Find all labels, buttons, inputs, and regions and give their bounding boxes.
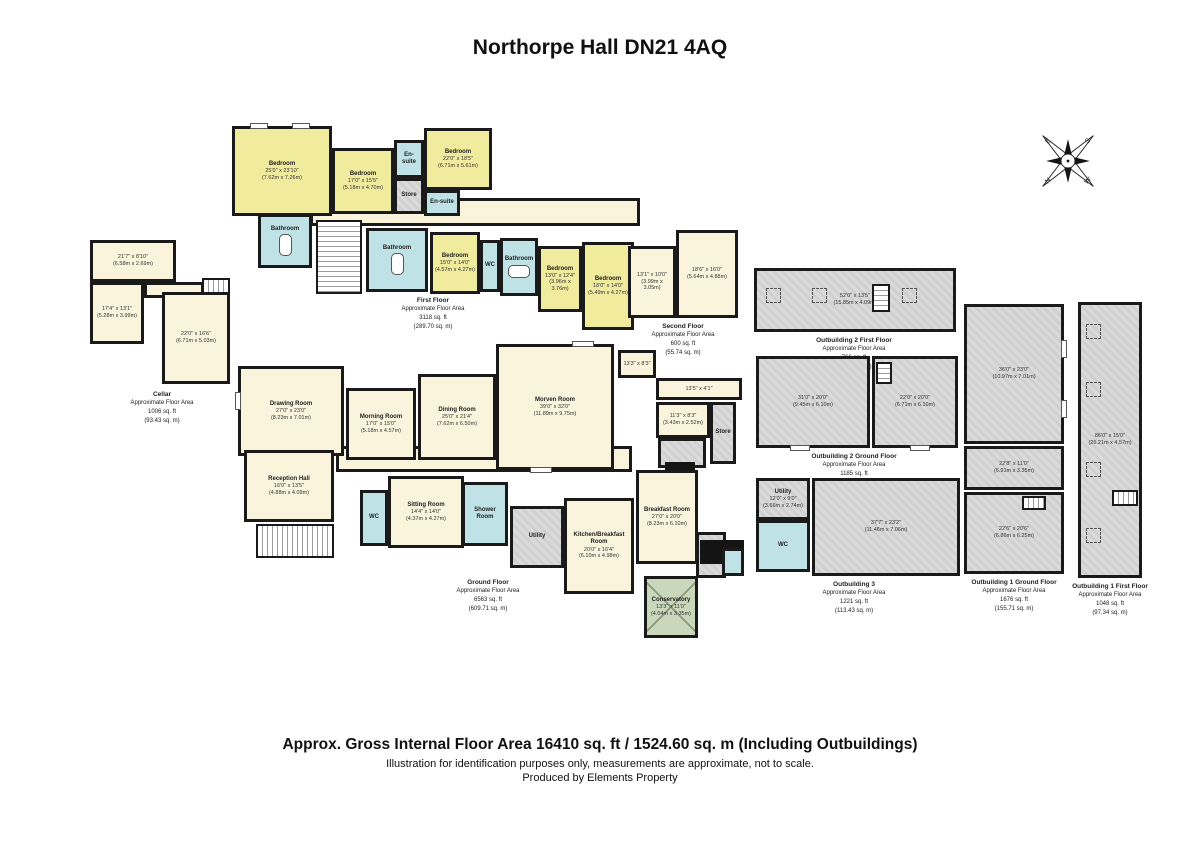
window-icon xyxy=(235,392,241,410)
floor-area-ft: 1048 sq. ft xyxy=(1066,600,1154,609)
room-dims-metric: (11.46m x 7.06m) xyxy=(865,527,908,534)
room-dims-metric: (6.86m x 6.25m) xyxy=(994,533,1034,540)
room-dims-metric: (6.91m x 3.35m) xyxy=(994,468,1034,475)
room-name: Kitchen/Breakfast Room xyxy=(568,532,630,546)
room-bedroom-2: Bedroom 17'0" x 15'5" (5.18m x 4.70m) xyxy=(332,148,394,214)
room-dims-imperial: 37'7" x 23'2" xyxy=(871,520,901,527)
floor-area-m: (97.34 sq. m) xyxy=(1066,609,1154,618)
room-dims-metric: (6.10m x 4.98m) xyxy=(579,553,619,560)
floor-label-first-floor: First Floor Approximate Floor Area 3118 … xyxy=(390,296,476,331)
room-dims-imperial: 13'0" x 12'4" xyxy=(545,273,575,280)
room-dims-metric: (4.37m x 4.27m) xyxy=(406,516,446,523)
room-morning-room: Morning Room 17'0" x 15'0" (5.18m x 4.57… xyxy=(346,388,416,460)
rooflight-icon xyxy=(766,288,781,303)
room-ensuite-2: En-suite xyxy=(424,190,460,216)
room-name: Morven Room xyxy=(535,397,575,404)
room-name: Store xyxy=(715,429,730,436)
room-dims-metric: (8.23m x 6.10m) xyxy=(647,521,687,528)
room-name: Drawing Room xyxy=(270,401,312,408)
room-dims-imperial: 18'6" x 16'0" xyxy=(692,267,722,274)
window-icon xyxy=(1061,340,1067,358)
room-name: Bedroom xyxy=(547,266,573,273)
room-bedroom-5: Bedroom 13'0" x 12'4" (3.96m x 3.76m) xyxy=(538,246,582,312)
room-dims-imperial: 13'5" x 4'1" xyxy=(685,386,712,393)
room-cellar-1: 21'7" x 8'10" (6.58m x 2.69m) xyxy=(90,240,176,282)
floor-approx: Approximate Floor Area xyxy=(446,587,530,596)
room-dims-imperial: 11'3" x 8'3" xyxy=(670,413,697,420)
room-morven-room: Morven Room 39'0" x 32'0" (11.89m x 9.75… xyxy=(496,344,614,470)
room-dims-imperial: 22'0" x 18'5" xyxy=(443,156,473,163)
window-icon xyxy=(530,467,552,473)
room-dims-imperial: 12'0" x 9'0" xyxy=(769,496,796,503)
room-corridor-2: 13'5" x 4'1" xyxy=(656,378,742,400)
room-name: Reception Hall xyxy=(268,476,310,483)
gross-floor-area-text: Approx. Gross Internal Floor Area 16410 … xyxy=(0,736,1200,754)
room-breakfast-room: Breakfast Room 27'0" x 20'0" (8.23m x 6.… xyxy=(636,470,698,564)
staircase-outbuilding1-first xyxy=(1112,490,1138,506)
room-dims-metric: (3.99m x 3.05m) xyxy=(632,279,672,292)
room-dims-metric: (10.97m x 7.01m) xyxy=(992,374,1035,381)
room-name: Store xyxy=(401,192,416,199)
floor-label-outbuilding1-ground: Outbuilding 1 Ground Floor Approximate F… xyxy=(962,578,1066,613)
floor-label-ground-floor: Ground Floor Approximate Floor Area 6563… xyxy=(446,578,530,613)
staircase-cellar xyxy=(202,278,230,294)
room-wc-firstfloor: WC xyxy=(480,240,500,292)
room-dining-room: Dining Room 25'0" x 21'4" (7.62m x 6.50m… xyxy=(418,374,496,460)
room-bedroom-1: Bedroom 25'0" x 23'10" (7.62m x 7.26m) xyxy=(232,126,332,216)
room-dims-metric: (6.71m x 5.03m) xyxy=(176,338,216,345)
room-dims-metric: (11.89m x 9.75m) xyxy=(534,411,577,418)
room-store-firstfloor: Store xyxy=(394,178,424,214)
floor-name: Ground Floor xyxy=(446,578,530,587)
room-name: Bedroom xyxy=(269,161,295,168)
room-dims-imperial: 21'7" x 8'10" xyxy=(118,254,148,261)
floor-area-ft: 1006 sq. ft xyxy=(118,408,206,417)
room-conservatory: Conservatory 13'3" x 11'0" (4.04m x 3.35… xyxy=(644,576,698,638)
room-name: Bathroom xyxy=(505,256,533,263)
room-bathroom-2: Bathroom xyxy=(366,228,428,292)
produced-by-text: Produced by Elements Property xyxy=(0,772,1200,784)
room-dims-imperial: 36'0" x 23'0" xyxy=(999,367,1029,374)
room-bathroom-1: Bathroom xyxy=(258,214,312,268)
room-dims-metric: (6.71m x 5.61m) xyxy=(438,163,478,170)
staircase-outbuilding2-ground xyxy=(876,362,892,384)
room-bedroom-4: Bedroom 15'0" x 14'0" (4.57m x 4.27m) xyxy=(430,232,480,294)
room-sitting-room: Sitting Room 14'4" x 14'0" (4.37m x 4.27… xyxy=(388,476,464,548)
staircase-ground-floor xyxy=(256,524,334,558)
floor-area-m: (113.43 sq. m) xyxy=(806,607,902,616)
room-ensuite-1: En-suite xyxy=(394,140,424,178)
room-wc-ground: WC xyxy=(360,490,388,546)
floor-name: First Floor xyxy=(390,296,476,305)
room-dims-metric: (9.45m x 6.10m) xyxy=(793,402,833,409)
window-icon xyxy=(910,445,930,451)
floor-approx: Approximate Floor Area xyxy=(1066,591,1154,600)
rooflight-icon xyxy=(1086,528,1101,543)
room-name: Conservatory xyxy=(652,597,691,604)
room-reception-hall: Reception Hall 16'0" x 13'5" (4.88m x 4.… xyxy=(244,450,334,522)
room-outbuilding1-ground-2: 22'8" x 11'0" (6.91m x 3.35m) xyxy=(964,446,1064,490)
room-name: Breakfast Room xyxy=(644,507,690,514)
room-dims-imperial: 13'3" x 11'0" xyxy=(656,604,686,611)
room-utility-ground: Utility xyxy=(510,506,564,568)
room-dims-imperial: 31'0" x 20'0" xyxy=(798,395,828,402)
room-name: Sitting Room xyxy=(407,502,444,509)
window-icon xyxy=(292,123,310,129)
room-bedroom-6: Bedroom 18'0" x 14'0" (5.49m x 4.27m) xyxy=(582,242,634,330)
room-outbuilding3-main: 37'7" x 23'2" (11.46m x 7.06m) xyxy=(812,478,960,576)
floor-name: Outbuilding 1 Ground Floor xyxy=(962,578,1066,587)
room-outbuilding1-ground-1: 36'0" x 23'0" (10.97m x 7.01m) xyxy=(964,304,1064,444)
room-dims-imperial: 13'3" x 8'3" xyxy=(623,361,650,368)
bathtub-icon xyxy=(391,253,404,275)
floor-name: Outbuilding 2 First Floor xyxy=(806,336,902,345)
room-name: Bathroom xyxy=(383,245,411,252)
room-dims-metric: (7.62m x 6.50m) xyxy=(437,421,477,428)
rooflight-icon xyxy=(1086,324,1101,339)
floor-approx: Approximate Floor Area xyxy=(390,305,476,314)
room-dims-metric: (6.71m x 6.10m) xyxy=(895,402,935,409)
floor-area-m: (609.71 sq. m) xyxy=(446,605,530,614)
room-name: Shower Room xyxy=(466,507,504,521)
floor-name: Outbuilding 3 xyxy=(806,580,902,589)
room-dims-imperial: 17'4" x 13'1" xyxy=(102,306,132,313)
room-shower-room: Shower Room xyxy=(462,482,508,546)
floor-area-ft: 600 sq. ft xyxy=(642,340,724,349)
room-name: Utility xyxy=(529,533,546,540)
room-outbuilding3-wc: WC xyxy=(756,520,810,572)
floor-name: Cellar xyxy=(118,390,206,399)
window-icon xyxy=(572,341,594,347)
rooflight-icon xyxy=(1086,462,1101,477)
room-dims-metric: (3.96m x 3.76m) xyxy=(542,279,578,292)
staircase-outbuilding2 xyxy=(872,284,890,312)
floor-approx: Approximate Floor Area xyxy=(642,331,724,340)
room-outbuilding3-utility: Utility 12'0" x 9'0" (3.66m x 2.74m) xyxy=(756,478,810,520)
room-outbuilding1-ground-3: 22'6" x 20'6" (6.86m x 6.25m) xyxy=(964,492,1064,574)
room-outbuilding2-ground-1: 31'0" x 20'0" (9.45m x 6.10m) xyxy=(756,356,870,448)
room-dims-metric: (5.18m x 4.70m) xyxy=(343,185,383,192)
room-dims-metric: (3.43m x 2.52m) xyxy=(663,420,703,427)
room-kitchen-breakfast: Kitchen/Breakfast Room 20'0" x 16'4" (6.… xyxy=(564,498,634,594)
floor-approx: Approximate Floor Area xyxy=(806,461,902,470)
room-dims-metric: (4.88m x 4.09m) xyxy=(269,490,309,497)
room-outbuilding2-firstfloor: 52'0" x 13'5" (15.85m x 4.09m) xyxy=(754,268,956,332)
floor-approx: Approximate Floor Area xyxy=(806,345,902,354)
bathtub-icon xyxy=(508,265,530,278)
floor-area-ft: 1676 sq. ft xyxy=(962,596,1066,605)
room-name: WC xyxy=(778,542,788,549)
room-dims-metric: (8.23m x 7.01m) xyxy=(271,415,311,422)
room-dims-imperial: 27'0" x 20'0" xyxy=(652,514,682,521)
room-name: En-suite xyxy=(430,199,454,206)
floor-name: Outbuilding 1 First Floor xyxy=(1066,582,1154,591)
room-dims-imperial: 27'0" x 23'0" xyxy=(276,408,306,415)
room-dims-metric: (6.58m x 2.69m) xyxy=(113,261,153,268)
compass-rose-icon: N E S W xyxy=(1026,122,1110,200)
window-icon xyxy=(1061,400,1067,418)
staircase-outbuilding1-ground xyxy=(1022,496,1046,510)
bathtub-icon xyxy=(279,234,292,256)
room-dims-metric: (5.28m x 3.99m) xyxy=(97,313,137,320)
room-dims-imperial: 25'0" x 21'4" xyxy=(442,414,472,421)
room-dims-imperial: 14'4" x 14'0" xyxy=(411,509,441,516)
room-name: En-suite xyxy=(398,152,420,166)
room-name: Utility xyxy=(775,489,792,496)
room-dims-imperial: 22'0" x 16'6" xyxy=(181,331,211,338)
room-cellar-3: 22'0" x 16'6" (6.71m x 5.03m) xyxy=(162,292,230,384)
room-small-3: 11'3" x 8'3" (3.43m x 2.52m) xyxy=(656,402,710,438)
room-dims-imperial: 17'0" x 15'5" xyxy=(348,178,378,185)
floor-area-m: (155.71 sq. m) xyxy=(962,605,1066,614)
rooflight-icon xyxy=(902,288,917,303)
room-name: WC xyxy=(369,514,379,521)
staircase-first-floor xyxy=(316,220,362,294)
window-icon xyxy=(790,445,810,451)
room-dims-metric: (4.04m x 3.35m) xyxy=(651,611,691,618)
room-secondfloor-1: 13'1" x 10'0" (3.99m x 3.05m) xyxy=(628,246,676,318)
room-dims-metric: (4.57m x 4.27m) xyxy=(435,267,475,274)
footer: Approx. Gross Internal Floor Area 16410 … xyxy=(0,736,1200,784)
floor-area-m: (289.70 sq. m) xyxy=(390,323,476,332)
room-bathroom-3: Bathroom xyxy=(500,238,538,296)
room-dims-imperial: 86'0" x 15'0" xyxy=(1095,433,1125,440)
floor-name: Second Floor xyxy=(642,322,724,331)
floor-area-ft: 3118 sq. ft xyxy=(390,314,476,323)
room-small-1: 13'3" x 8'3" xyxy=(618,350,656,378)
rooflight-icon xyxy=(1086,382,1101,397)
floorplan-canvas: Northorpe Hall DN21 4AQ Bedroom 25'0" x … xyxy=(0,0,1200,847)
room-dims-imperial: 17'0" x 15'0" xyxy=(366,421,396,428)
floor-name: Outbuilding 2 Ground Floor xyxy=(806,452,902,461)
floor-area-m: (93.43 sq. m) xyxy=(118,417,206,426)
room-dims-imperial: 25'0" x 23'10" xyxy=(265,168,298,175)
room-dims-imperial: 18'0" x 14'0" xyxy=(593,283,623,290)
room-dims-metric: (5.64m x 4.88m) xyxy=(687,274,727,281)
floor-label-outbuilding3: Outbuilding 3 Approximate Floor Area 122… xyxy=(806,580,902,615)
room-dims-imperial: 13'1" x 10'0" xyxy=(637,272,667,279)
room-dims-imperial: 39'0" x 32'0" xyxy=(540,404,570,411)
room-name: Dining Room xyxy=(438,407,475,414)
room-name: Bedroom xyxy=(442,253,468,260)
room-dims-metric: (5.18m x 4.57m) xyxy=(361,428,401,435)
rooflight-icon xyxy=(812,288,827,303)
room-dims-imperial: 20'0" x 16'4" xyxy=(584,547,614,554)
room-name: Bathroom xyxy=(271,226,299,233)
room-dims-metric: (15.85m x 4.09m) xyxy=(833,300,876,307)
room-dims-metric: (26.21m x 4.57m) xyxy=(1088,440,1131,447)
window-icon xyxy=(250,123,268,129)
floor-approx: Approximate Floor Area xyxy=(118,399,206,408)
room-name: Morning Room xyxy=(360,414,402,421)
room-dims-imperial: 22'6" x 20'6" xyxy=(999,526,1029,533)
room-secondfloor-2: 18'6" x 16'0" (5.64m x 4.88m) xyxy=(676,230,738,318)
room-cellar-2: 17'4" x 13'1" (5.28m x 3.99m) xyxy=(90,282,144,344)
floor-label-cellar: Cellar Approximate Floor Area 1006 sq. f… xyxy=(118,390,206,425)
room-dims-metric: (7.62m x 7.26m) xyxy=(262,175,302,182)
room-dims-metric: (3.66m x 2.74m) xyxy=(763,503,803,510)
page-title: Northorpe Hall DN21 4AQ xyxy=(0,36,1200,60)
room-store-ground: Store xyxy=(710,402,736,464)
room-dims-imperial: 15'0" x 14'0" xyxy=(440,260,470,267)
room-name: Bedroom xyxy=(350,171,376,178)
floor-approx: Approximate Floor Area xyxy=(962,587,1066,596)
room-name: Bedroom xyxy=(445,149,471,156)
disclaimer-text: Illustration for identification purposes… xyxy=(0,758,1200,770)
room-dims-imperial: 22'0" x 20'0" xyxy=(900,395,930,402)
room-name: WC xyxy=(485,262,495,269)
floor-area-ft: 1221 sq. ft xyxy=(806,598,902,607)
room-wc-rear xyxy=(722,548,744,576)
room-dims-imperial: 16'0" x 13'5" xyxy=(274,483,304,490)
floor-label-outbuilding1-first: Outbuilding 1 First Floor Approximate Fl… xyxy=(1066,582,1154,617)
room-dims-imperial: 52'0" x 13'5" xyxy=(840,293,870,300)
room-bedroom-3: Bedroom 22'0" x 18'5" (6.71m x 5.61m) xyxy=(424,128,492,190)
room-dims-metric: (5.49m x 4.27m) xyxy=(588,290,628,297)
room-drawing-room: Drawing Room 27'0" x 23'0" (8.23m x 7.01… xyxy=(238,366,344,456)
floor-area-ft: 6563 sq. ft xyxy=(446,596,530,605)
floor-approx: Approximate Floor Area xyxy=(806,589,902,598)
room-name: Bedroom xyxy=(595,276,621,283)
room-dims-imperial: 22'8" x 11'0" xyxy=(999,461,1029,468)
